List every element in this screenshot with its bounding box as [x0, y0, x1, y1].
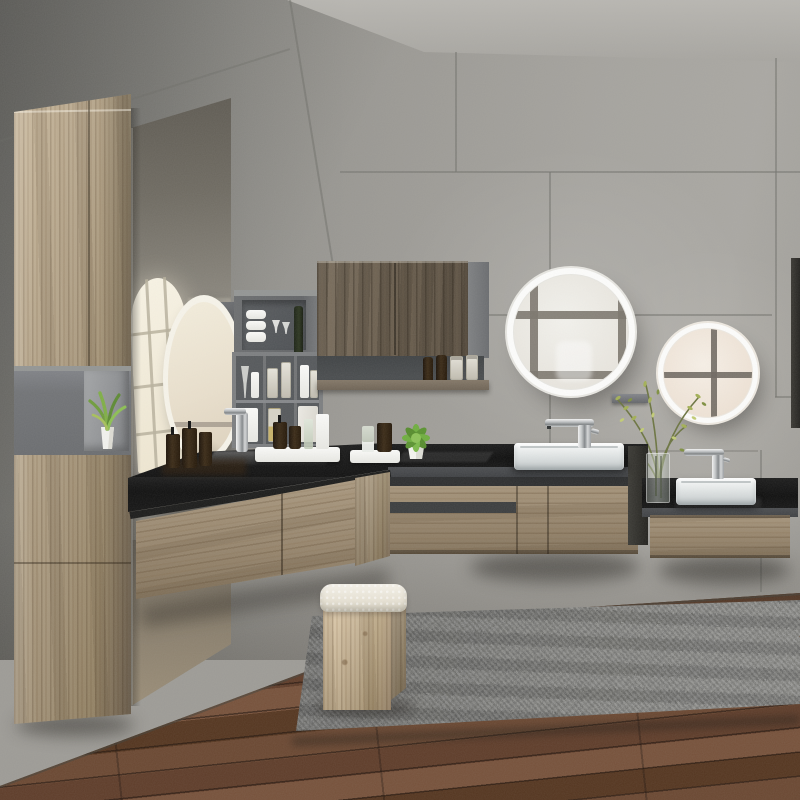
grey-cabinet-opening: [242, 300, 306, 350]
amber-bottle-1: [166, 434, 180, 468]
stool-front: [323, 604, 391, 710]
center-cabinet-bottom-shade: [390, 550, 638, 554]
dark-bottle-corner: [377, 423, 392, 452]
tall-storage-cabinet: [14, 93, 131, 724]
stool-cushion: [320, 584, 407, 612]
center-panel-seam-1: [516, 486, 518, 554]
open-niche-box: [14, 366, 131, 455]
tray-bottle-pump: [278, 415, 281, 423]
vase-stem-1: [655, 456, 657, 496]
center-faucet-aerator: [547, 426, 551, 429]
shelf-white-bottle: [251, 372, 259, 398]
center-vanity-wall-shadow: [470, 552, 640, 582]
bottle-pump-2: [188, 421, 191, 429]
right-vanity-wall-shadow: [658, 556, 790, 584]
right-vanity-cabinet: [650, 515, 790, 558]
tray-clear-bottle: [304, 419, 313, 449]
corner-cabinet-door-seam: [394, 263, 396, 355]
stool-side: [391, 601, 406, 700]
tray-amber-bottle-2: [289, 426, 301, 449]
bathroom-scene: [0, 0, 800, 800]
niche-interior: [84, 371, 129, 451]
shelf-wine-glass: [241, 366, 249, 398]
corner-wall-cabinet: [317, 261, 468, 356]
shelf-pump-bottle: [300, 365, 309, 398]
glass-jar-shelf-1: [450, 356, 463, 380]
cabinet-shadow-on-mirror: [131, 108, 141, 706]
succulent-plant: [399, 420, 433, 460]
dark-bottle-shelf: [294, 306, 303, 353]
glass-vase: [646, 453, 670, 503]
towel-roll-1: [246, 310, 266, 319]
niche-plant: [86, 375, 128, 451]
center-sink: [514, 443, 624, 470]
glass-jar-shelf-2: [466, 355, 478, 380]
tile-seam-v3: [775, 58, 777, 397]
amber-bottle-3: [199, 432, 212, 466]
amber-bottle-2: [182, 428, 197, 468]
window-muntin-v1: [145, 279, 158, 471]
tall-cabinet-door-seam: [88, 97, 90, 367]
tile-seam-v1: [455, 52, 457, 172]
right-sink-inner-rim: [681, 481, 751, 483]
grey-wall-cabinet: [234, 296, 319, 353]
right-cabinet-bottom-shade: [650, 555, 790, 558]
right-edge-dark-panel: [791, 258, 800, 428]
tray-amber-bottle-1: [273, 422, 287, 449]
right-cabinet-top-reveal: [650, 515, 790, 518]
corner-cabinet-side: [468, 262, 489, 358]
left-faucet-body: [236, 412, 248, 452]
tray-white-pump-bottle: [316, 414, 329, 449]
center-panel-seam-2: [547, 486, 549, 554]
wine-glass-1: [272, 320, 280, 333]
amber-bottle-shelf-2: [436, 355, 447, 380]
white-tray-2: [350, 450, 400, 463]
bottle-pump-1: [171, 427, 174, 435]
towel-roll-2: [246, 321, 266, 330]
center-faucet-body: [578, 425, 591, 448]
big-mirror-bar-h1: [514, 311, 628, 319]
wine-glass-2: [282, 322, 290, 334]
corner-shelf-lip: [317, 380, 489, 390]
right-sink: [676, 478, 756, 505]
left-vanity-end-panel: [355, 470, 390, 566]
vase-stem-2: [660, 456, 662, 498]
shelf-jar-2: [281, 362, 291, 398]
corner-cabinet-top-edge: [317, 261, 468, 263]
center-sink-inner-rim: [520, 446, 618, 448]
towel-roll-3: [246, 332, 266, 342]
shelf-middle: [236, 400, 319, 403]
shelf-jar-1: [267, 368, 278, 398]
amber-bottle-shelf-1: [423, 357, 433, 380]
white-tray-1: [255, 447, 340, 462]
left-faucet-spout: [224, 408, 246, 415]
tall-cabinet-drawer-seam: [14, 562, 131, 564]
center-drawer-gap: [390, 502, 516, 513]
stool-wood-knots: [323, 604, 391, 710]
center-vanity-cabinet: [390, 486, 638, 554]
big-mirror-door-reflection: [556, 341, 592, 381]
clear-bottle-labelled: [362, 426, 374, 452]
tile-seam-h1: [340, 171, 800, 173]
